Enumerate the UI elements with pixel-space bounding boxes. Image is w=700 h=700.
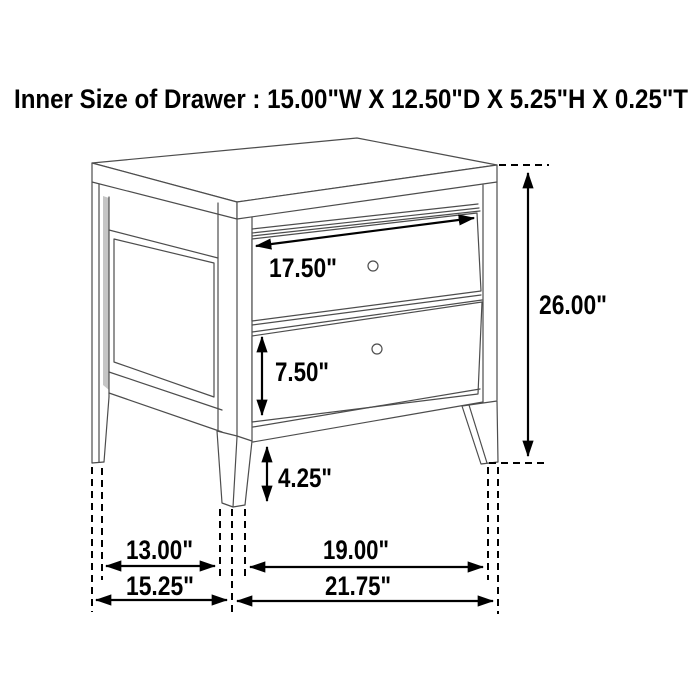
diagram-svg: Inner Size of Drawer : 15.00"W X 12.50"D…: [0, 0, 700, 700]
dim-label-overall-width: 21.75": [325, 571, 391, 601]
side-recessed-panel: [114, 239, 214, 397]
dim-label-drawer-width: 17.50": [269, 253, 337, 283]
dim-label-floor-clearance: 4.25": [278, 463, 332, 493]
dim-side-inner-span: 13.00": [106, 535, 215, 566]
dim-overall-depth: 15.25": [96, 571, 227, 601]
dim-floor-clearance: 4.25": [267, 447, 332, 501]
front-corner-leg: [217, 431, 252, 507]
dim-label-front-inner: 19.00": [323, 535, 389, 565]
dim-label-drawer-height: 7.50": [275, 357, 329, 387]
dim-label-overall-depth: 15.25": [126, 571, 194, 601]
dim-overall-width: 21.75": [237, 571, 493, 601]
front-right-leg: [462, 401, 498, 464]
dim-label-overall-height: 26.00": [539, 290, 607, 320]
top-drawer-knob-icon: [368, 261, 378, 271]
bottom-drawer-knob-icon: [372, 344, 382, 354]
dim-front-inner-span: 19.00": [250, 535, 483, 567]
page-title: Inner Size of Drawer : 15.00"W X 12.50"D…: [14, 84, 688, 114]
drawer-front-face: [252, 182, 497, 442]
nightstand-drawing: [92, 138, 498, 507]
dim-label-side-inner: 13.00": [126, 535, 193, 565]
back-left-leg: [104, 397, 109, 462]
side-panel: [92, 182, 237, 463]
dim-overall-height: 26.00": [489, 165, 607, 463]
corner-shading: [103, 196, 109, 390]
dimension-diagram: Inner Size of Drawer : 15.00"W X 12.50"D…: [0, 0, 700, 700]
